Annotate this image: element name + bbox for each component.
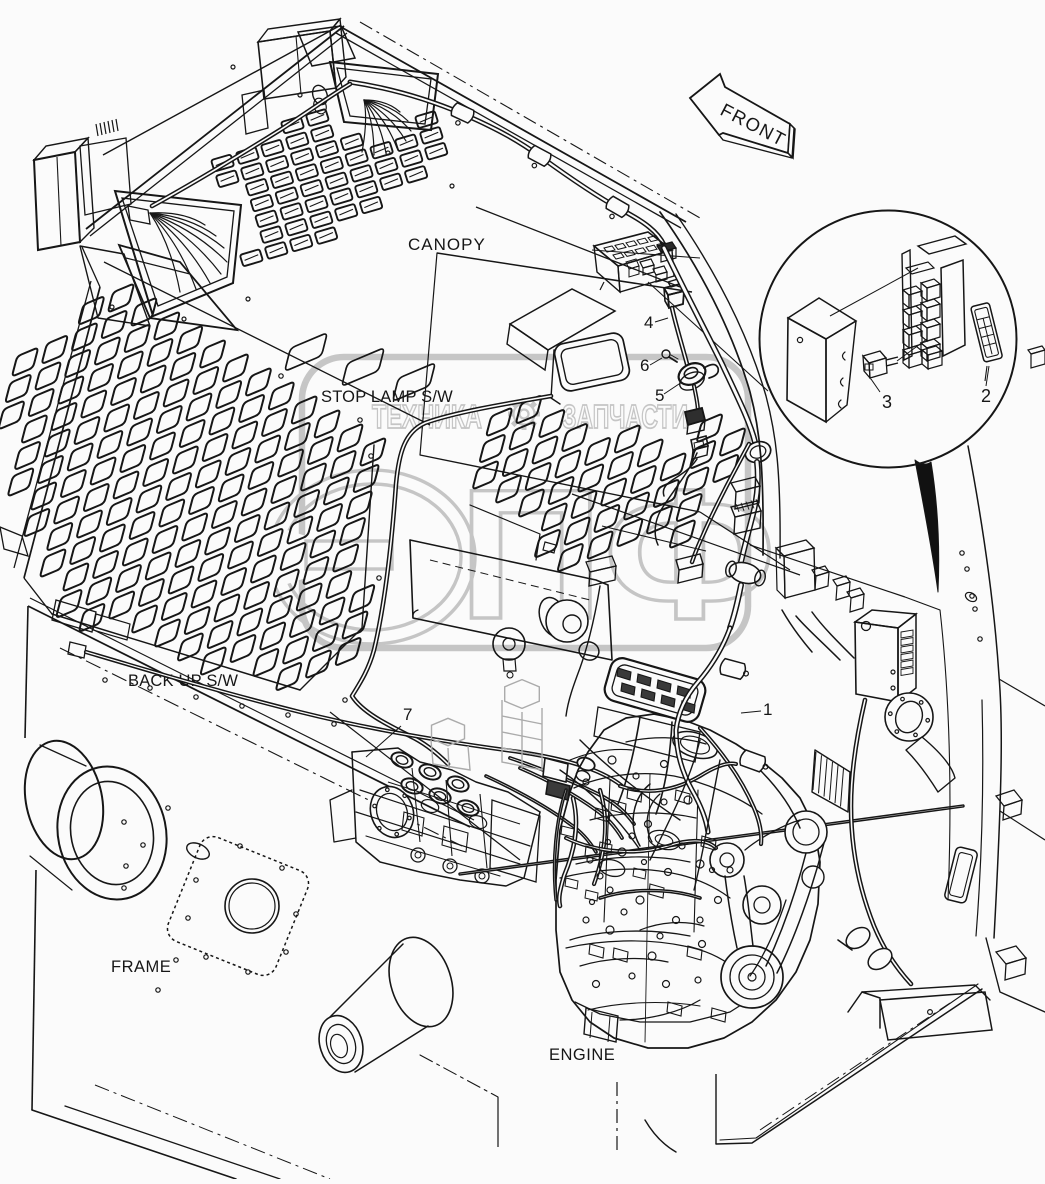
svg-text:3: 3 — [882, 392, 893, 412]
svg-text:STOP LAMP S/W: STOP LAMP S/W — [321, 388, 453, 406]
svg-text:4: 4 — [644, 313, 654, 332]
svg-text:7: 7 — [403, 705, 413, 724]
svg-text:FRAME: FRAME — [111, 958, 171, 976]
svg-text:ЗАПЧАСТИ: ЗАПЧАСТИ — [562, 398, 688, 435]
svg-text:5: 5 — [655, 386, 665, 405]
svg-text:CANOPY: CANOPY — [408, 235, 486, 254]
svg-text:2: 2 — [981, 386, 992, 406]
svg-text:ENGINE: ENGINE — [549, 1046, 615, 1064]
svg-text:6: 6 — [640, 356, 650, 375]
svg-text:1: 1 — [763, 700, 773, 719]
